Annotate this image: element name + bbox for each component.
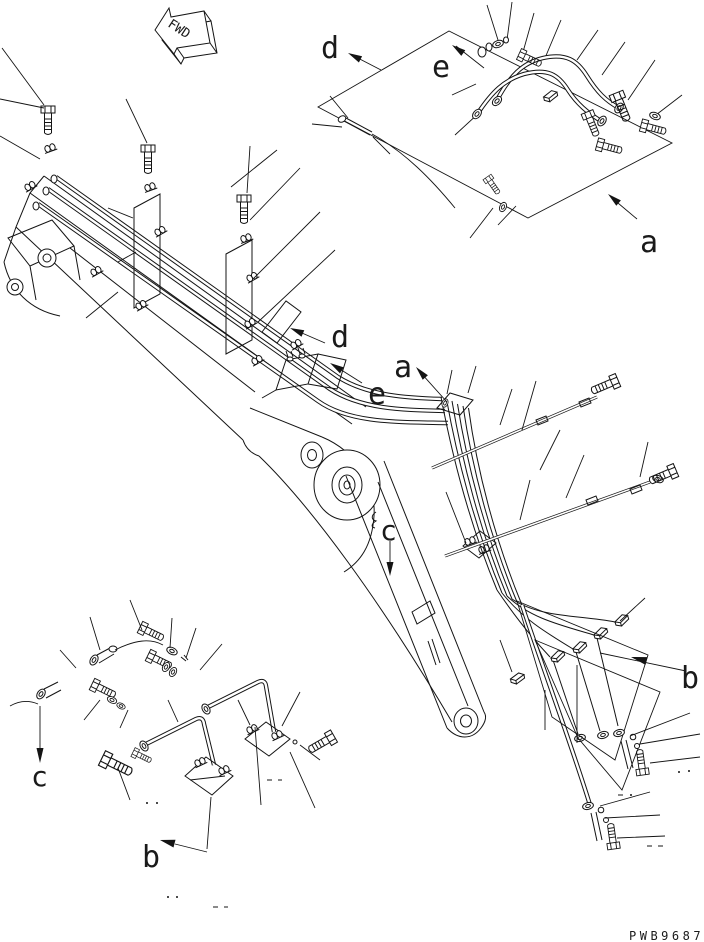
drawing-number: PWB9687 <box>629 929 704 942</box>
view-label-d-mid: d <box>331 320 349 355</box>
bolt-stack <box>613 713 700 776</box>
view-label-b-right: b <box>681 661 699 696</box>
view-label-a-top: a <box>640 225 658 260</box>
view-arrow-d-top <box>348 53 362 63</box>
hex-bolt <box>98 751 135 780</box>
view-arrow-e-top <box>452 45 465 56</box>
view-arrow-d-mid <box>290 328 304 337</box>
view-label-a-mid: a <box>394 350 412 385</box>
pipe-flange <box>574 733 586 742</box>
hose-curve <box>372 134 455 208</box>
view-label-d-top: d <box>321 31 339 66</box>
mounting-plate <box>185 757 233 795</box>
parts-diagram-page: FWD <box>0 0 704 942</box>
view-label-c-mid: c <box>380 514 397 547</box>
section-b-detail <box>517 601 700 850</box>
tube-clamp <box>43 143 58 154</box>
view-label-e-mid: e <box>368 377 386 412</box>
hex-bolt <box>137 621 166 644</box>
clamp-foot <box>614 613 631 627</box>
boom-foot <box>7 220 80 300</box>
elbow-fitting <box>478 47 486 57</box>
detail-inset-top-right <box>312 2 682 238</box>
view-arrow-a-mid <box>416 367 428 380</box>
hex-bolt <box>595 138 623 157</box>
fwd-direction-arrow: FWD <box>155 8 217 64</box>
tube-clamp <box>143 182 158 193</box>
nut <box>504 37 509 43</box>
clamp-foot <box>550 649 567 663</box>
clamp-block <box>543 90 559 103</box>
hex-bolt <box>306 730 338 756</box>
pin-eye <box>454 708 478 734</box>
view-label-e-top: e <box>432 50 450 85</box>
hex-bolt <box>483 174 502 196</box>
small-bolt <box>337 114 372 135</box>
hex-bolt <box>41 106 55 135</box>
section-c-detail <box>35 600 338 849</box>
clamp-rod <box>445 464 679 556</box>
elbow-fitting <box>88 654 100 667</box>
boom-assembly <box>0 48 525 737</box>
inset-boundary <box>318 31 672 218</box>
hex-bolt <box>141 145 155 174</box>
elbow-fitting <box>35 688 47 701</box>
hex-bolt <box>639 119 667 138</box>
view-arrow-b-bottom <box>160 840 176 848</box>
pipe-flange <box>597 730 609 739</box>
pivot-hub <box>314 450 380 520</box>
tube-clamp <box>239 233 254 244</box>
view-label-b-bottom: b <box>142 840 160 875</box>
reference-marks <box>146 770 690 907</box>
view-arrow-b-right <box>631 657 648 665</box>
view-arrow-c-mid <box>387 562 394 576</box>
parts-diagram: FWD <box>0 0 704 942</box>
bolt-stack <box>582 792 665 850</box>
hex-bolt <box>237 195 251 224</box>
view-label-c-bottom: c <box>31 760 48 793</box>
clamp-foot <box>572 640 589 654</box>
leader-lines <box>0 48 335 322</box>
washer <box>166 646 179 657</box>
leader-lines <box>60 600 320 849</box>
washer <box>492 39 505 49</box>
clamp-plate-top <box>262 301 301 343</box>
boom-outline <box>4 176 452 722</box>
hex-bolt <box>131 748 153 766</box>
